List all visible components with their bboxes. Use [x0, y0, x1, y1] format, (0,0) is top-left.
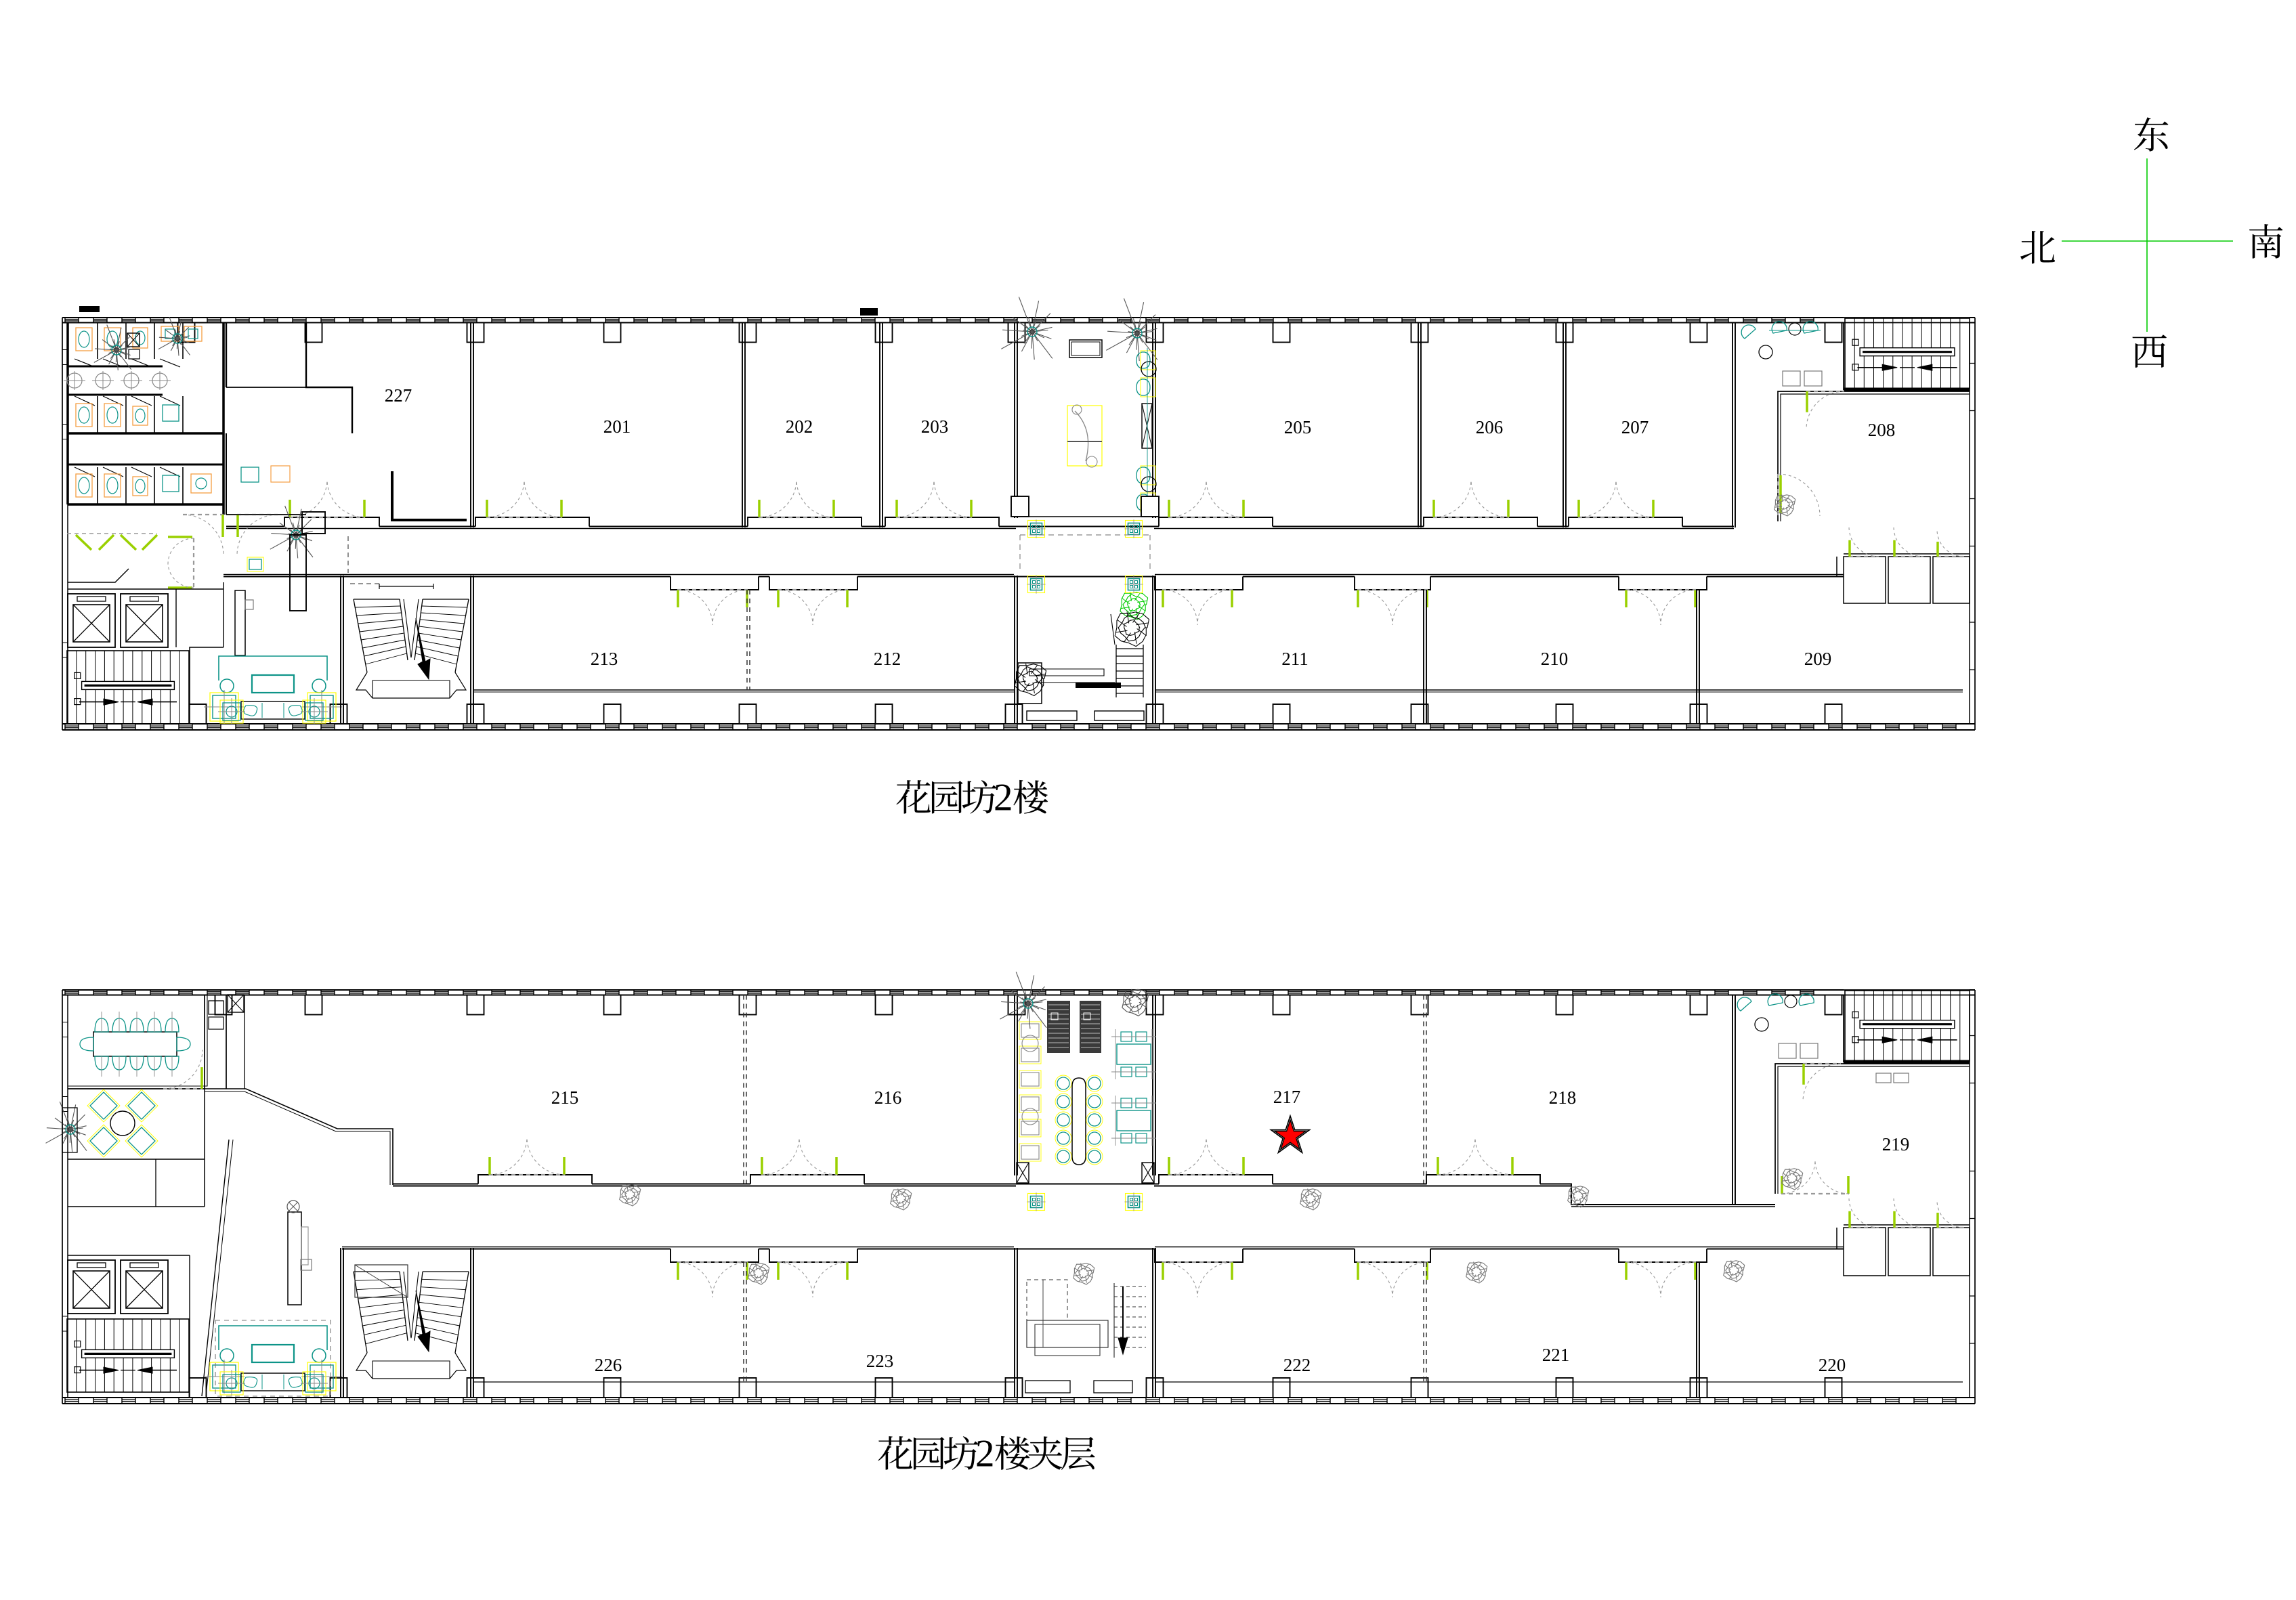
svg-text:210: 210	[1541, 649, 1569, 669]
svg-text:203: 203	[921, 416, 949, 437]
svg-text:207: 207	[1621, 417, 1649, 437]
svg-text:215: 215	[551, 1087, 579, 1108]
svg-text:227: 227	[385, 385, 412, 406]
svg-text:201: 201	[603, 416, 631, 437]
svg-text:222: 222	[1283, 1355, 1311, 1375]
svg-text:217: 217	[1273, 1087, 1301, 1107]
svg-text:2: 2	[975, 1432, 995, 1475]
svg-text:216: 216	[874, 1087, 902, 1108]
svg-text:206: 206	[1476, 417, 1504, 437]
svg-text:220: 220	[1819, 1355, 1846, 1375]
svg-text:209: 209	[1804, 649, 1832, 669]
svg-text:205: 205	[1284, 417, 1312, 437]
svg-text:211: 211	[1281, 649, 1309, 669]
svg-text:219: 219	[1882, 1134, 1910, 1154]
svg-text:218: 218	[1549, 1087, 1577, 1108]
svg-text:223: 223	[866, 1351, 894, 1371]
svg-text:221: 221	[1542, 1345, 1570, 1365]
svg-text:213: 213	[591, 649, 618, 669]
svg-text:208: 208	[1868, 420, 1896, 440]
svg-text:226: 226	[595, 1355, 622, 1375]
svg-text:212: 212	[874, 649, 901, 669]
svg-text:202: 202	[786, 416, 813, 437]
svg-text:2: 2	[994, 776, 1013, 819]
